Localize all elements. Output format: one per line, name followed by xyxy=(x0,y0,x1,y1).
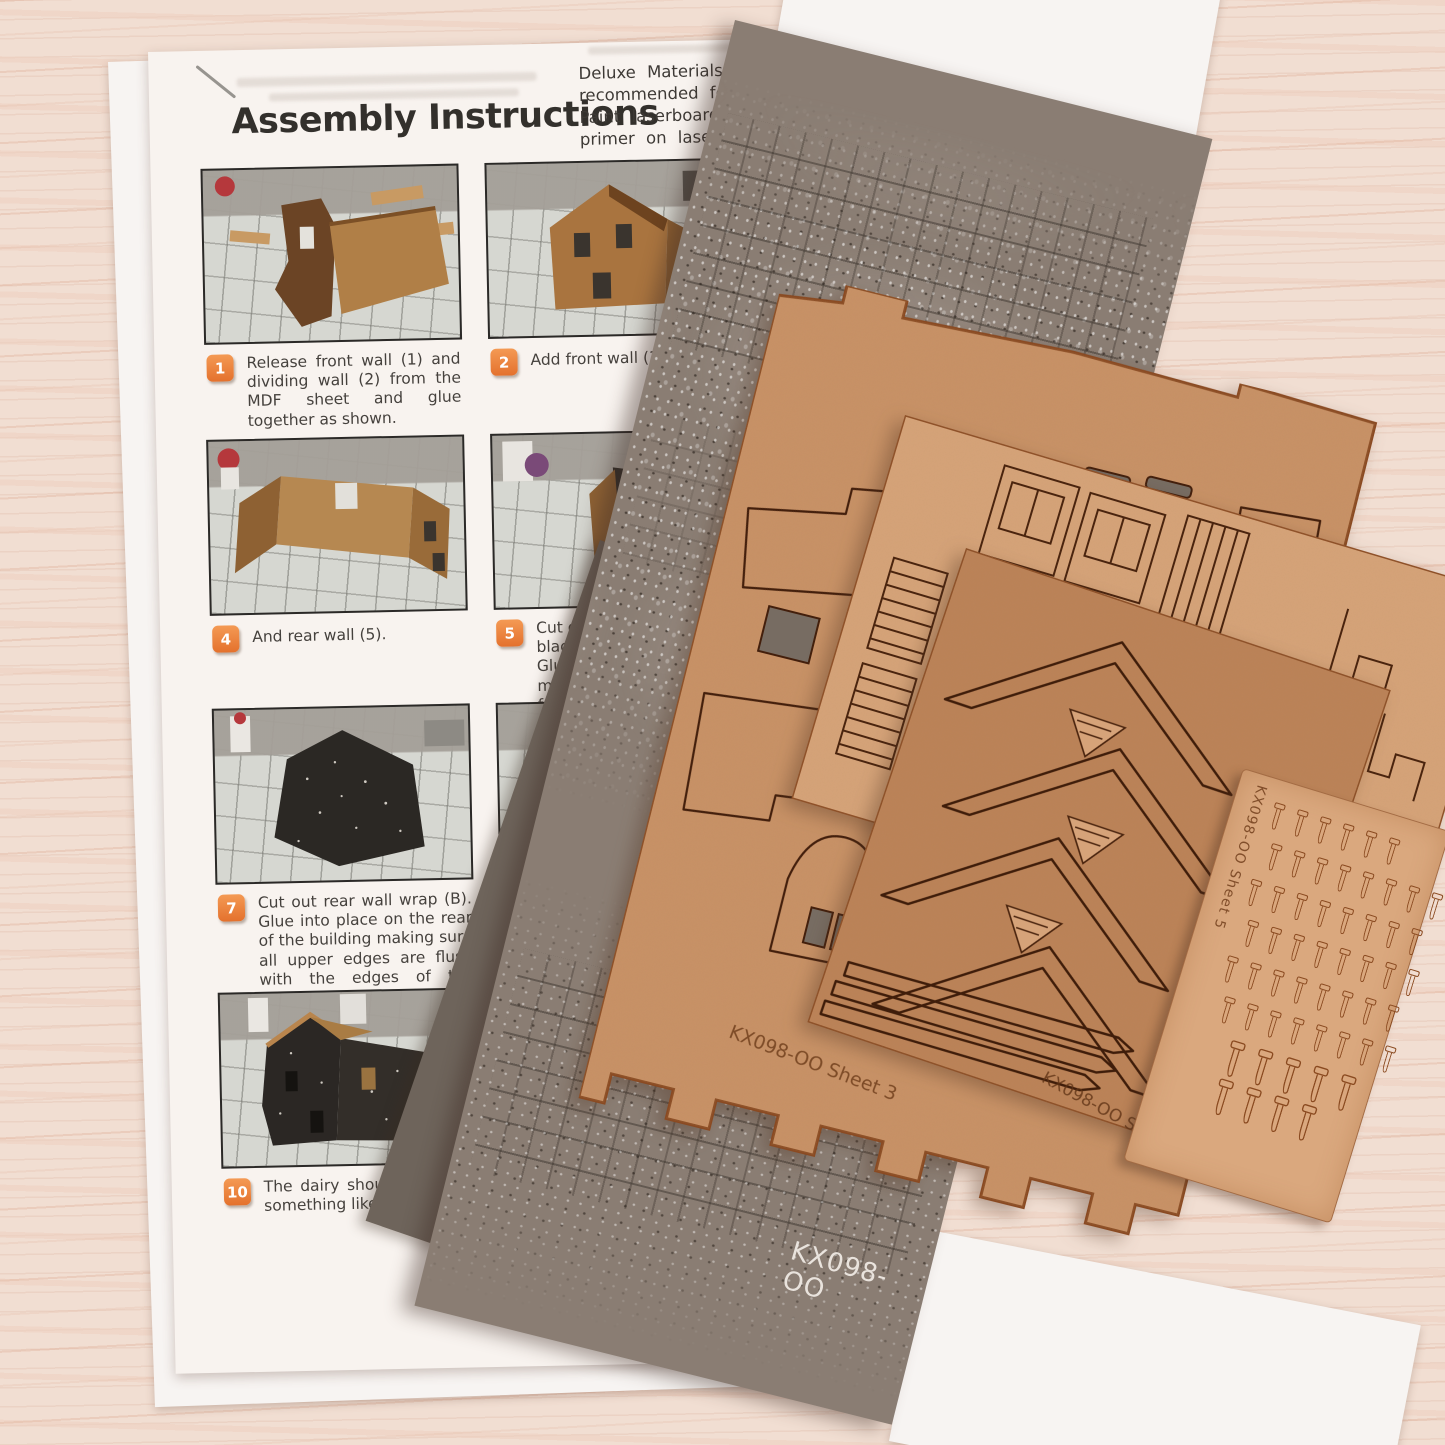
screw-icon xyxy=(1266,802,1286,835)
screw-icon xyxy=(1240,919,1260,952)
screw-icon xyxy=(1378,878,1398,911)
step-number-badge: 4 xyxy=(212,625,240,653)
screw-icon xyxy=(1217,996,1237,1029)
screw-icon xyxy=(1401,885,1421,918)
screw-icon xyxy=(1308,1024,1328,1057)
screw-icon xyxy=(1208,1078,1234,1122)
screw-icon xyxy=(1358,914,1378,947)
step-photo-7 xyxy=(212,703,474,884)
step-caption-4: 4 And rear wall (5). xyxy=(210,610,470,708)
screw-icon xyxy=(1263,843,1283,876)
screw-icon xyxy=(1266,886,1286,919)
screw-icon xyxy=(1357,997,1377,1030)
screw-icon xyxy=(1243,962,1263,995)
kit-photo-scene: Assembly Instructions Deluxe Materials r… xyxy=(0,0,1445,1445)
screw-icon xyxy=(1355,871,1375,904)
screw-icon xyxy=(1331,1074,1357,1118)
screw-icon xyxy=(1303,1065,1329,1109)
step-photo-4 xyxy=(206,434,468,615)
screw-icon xyxy=(1401,968,1421,1001)
screw-icon xyxy=(1380,1004,1400,1037)
screw-icon xyxy=(1286,933,1306,966)
showthrough-text xyxy=(237,72,537,87)
screw-icon xyxy=(1331,1031,1351,1064)
screw-icon xyxy=(1311,983,1331,1016)
screw-icon xyxy=(1220,955,1240,988)
screw-icon xyxy=(1377,1045,1397,1078)
screw-icon xyxy=(1309,857,1329,890)
screw-icon xyxy=(1220,1040,1246,1084)
screw-icon xyxy=(1354,1038,1374,1071)
step-number-badge: 5 xyxy=(496,619,524,647)
screw-icon xyxy=(1355,954,1375,987)
screw-icon xyxy=(1309,940,1329,973)
screw-icon xyxy=(1266,969,1286,1002)
screw-icon xyxy=(1286,850,1306,883)
step-number-badge: 10 xyxy=(224,1178,252,1206)
screw-icon xyxy=(1262,1010,1282,1043)
step-photo-1 xyxy=(200,164,462,345)
screw-icon xyxy=(1424,892,1444,925)
screw-icon xyxy=(1332,864,1352,897)
screw-icon xyxy=(1289,893,1309,926)
screw-icon xyxy=(1264,1095,1290,1139)
step-number-badge: 2 xyxy=(490,348,518,376)
screw-icon xyxy=(1381,921,1401,954)
screw-icon xyxy=(1404,928,1424,961)
screw-icon xyxy=(1248,1048,1274,1092)
screw-icon xyxy=(1240,1003,1260,1036)
etched-screws xyxy=(1182,802,1436,1157)
screw-icon xyxy=(1285,1017,1305,1050)
blank-paper-bottom-right xyxy=(889,1230,1421,1445)
screw-icon xyxy=(1312,816,1332,849)
staple xyxy=(195,65,236,99)
step-number-badge: 1 xyxy=(206,354,234,382)
step-text: Release front wall (1) and dividing wall… xyxy=(246,350,462,431)
screw-icon xyxy=(1358,830,1378,863)
screw-icon xyxy=(1263,926,1283,959)
step-number-badge: 7 xyxy=(218,894,246,922)
screw-icon xyxy=(1312,900,1332,933)
screw-icon xyxy=(1236,1086,1262,1130)
screw-icon xyxy=(1335,907,1355,940)
screw-icon xyxy=(1275,1057,1301,1101)
step-caption-1: 1 Release front wall (1) and dividing wa… xyxy=(204,339,464,439)
screw-icon xyxy=(1378,961,1398,994)
screw-icon xyxy=(1332,947,1352,980)
screw-icon xyxy=(1289,809,1309,842)
screw-icon xyxy=(1243,878,1263,911)
screw-icon xyxy=(1335,823,1355,856)
screw-icon xyxy=(1291,1103,1317,1147)
screw-icon xyxy=(1381,837,1401,870)
step-text: And rear wall (5). xyxy=(252,622,387,647)
screw-icon xyxy=(1334,990,1354,1023)
screw-icon xyxy=(1288,976,1308,1009)
step-caption-7: 7 Cut out rear wall wrap (B). Glue into … xyxy=(215,879,475,992)
